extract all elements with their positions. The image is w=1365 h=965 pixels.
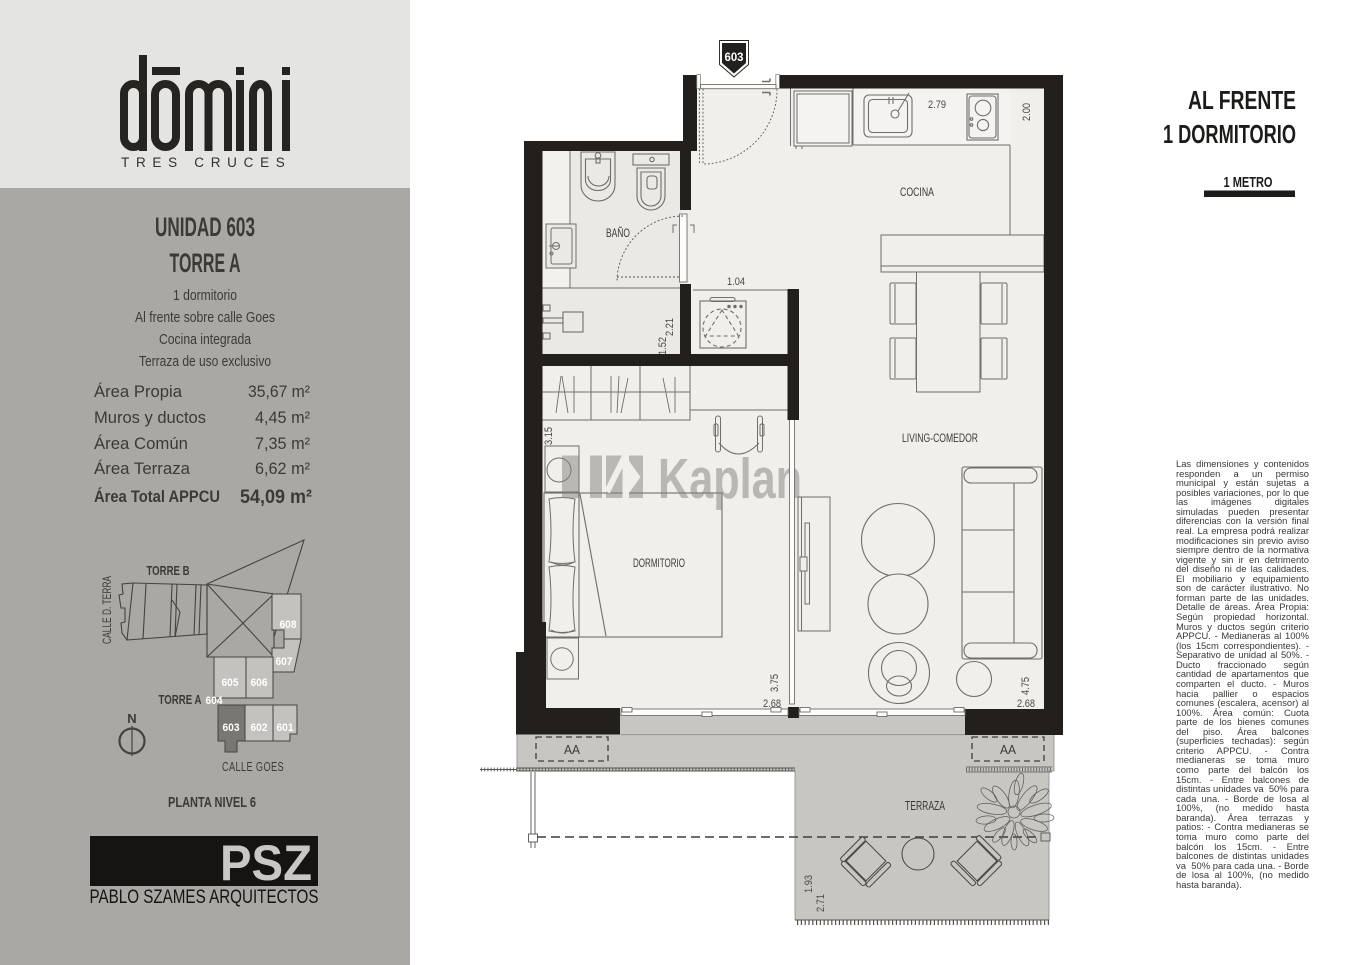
svg-text:4.75: 4.75 bbox=[1020, 677, 1032, 695]
svg-text:LIVING-COMEDOR: LIVING-COMEDOR bbox=[902, 431, 978, 445]
svg-text:3.75: 3.75 bbox=[769, 674, 781, 692]
svg-text:AL FRENTE: AL FRENTE bbox=[1188, 85, 1296, 115]
svg-text:Área Total APPCU: Área Total APPCU bbox=[94, 487, 220, 506]
svg-text:35,67 m²: 35,67 m² bbox=[248, 382, 310, 401]
svg-text:COCINA: COCINA bbox=[900, 185, 934, 199]
svg-text:1 dormitorio: 1 dormitorio bbox=[173, 287, 237, 304]
svg-text:2.71: 2.71 bbox=[815, 894, 827, 912]
svg-text:606: 606 bbox=[251, 677, 268, 689]
svg-text:TERRAZA: TERRAZA bbox=[905, 798, 945, 813]
svg-text:PSZ: PSZ bbox=[220, 835, 312, 891]
svg-text:7,35 m²: 7,35 m² bbox=[255, 434, 310, 453]
svg-text:1.52: 1.52 bbox=[657, 337, 669, 355]
svg-text:603: 603 bbox=[223, 722, 240, 734]
svg-text:CALLE D. TERRA: CALLE D. TERRA bbox=[102, 576, 114, 644]
svg-text:54,09 m²: 54,09 m² bbox=[240, 487, 312, 508]
svg-text:1 DORMITORIO: 1 DORMITORIO bbox=[1163, 119, 1296, 149]
svg-text:AA: AA bbox=[1000, 743, 1017, 757]
svg-text:6,62 m²: 6,62 m² bbox=[255, 459, 310, 478]
svg-text:Área Propia: Área Propia bbox=[94, 382, 183, 401]
svg-text:2.21: 2.21 bbox=[664, 318, 676, 336]
svg-text:2.00: 2.00 bbox=[1021, 103, 1033, 121]
svg-text:1 METRO: 1 METRO bbox=[1224, 174, 1273, 191]
svg-text:2.68: 2.68 bbox=[1017, 698, 1035, 710]
svg-text:601: 601 bbox=[277, 722, 294, 734]
svg-text:Cocina integrada: Cocina integrada bbox=[159, 331, 252, 348]
svg-text:3.15: 3.15 bbox=[543, 427, 555, 445]
svg-text:CALLE GOES: CALLE GOES bbox=[222, 760, 284, 774]
svg-text:Muros y ductos: Muros y ductos bbox=[94, 408, 206, 427]
svg-text:TRES CRUCES: TRES CRUCES bbox=[121, 155, 293, 170]
svg-text:607: 607 bbox=[276, 656, 293, 668]
svg-text:4,45 m²: 4,45 m² bbox=[255, 408, 310, 427]
svg-text:Kaplan: Kaplan bbox=[658, 447, 802, 511]
svg-text:PABLO SZAMES ARQUITECTOS: PABLO SZAMES ARQUITECTOS bbox=[90, 886, 319, 908]
svg-text:Área Común: Área Común bbox=[94, 434, 188, 453]
svg-text:1.04: 1.04 bbox=[727, 276, 745, 288]
svg-text:TORRE B: TORRE B bbox=[147, 564, 190, 578]
svg-text:603: 603 bbox=[725, 52, 744, 64]
svg-text:2.79: 2.79 bbox=[928, 99, 946, 111]
svg-text:AA: AA bbox=[564, 743, 581, 757]
svg-text:UNIDAD 603: UNIDAD 603 bbox=[155, 212, 255, 242]
svg-text:TORRE A: TORRE A bbox=[159, 693, 202, 707]
svg-text:605: 605 bbox=[222, 677, 239, 689]
svg-text:N: N bbox=[127, 711, 136, 726]
svg-text:DORMITORIO: DORMITORIO bbox=[633, 556, 685, 570]
svg-text:Al frente sobre calle Goes: Al frente sobre calle Goes bbox=[135, 309, 275, 326]
svg-text:Área Terraza: Área Terraza bbox=[94, 459, 191, 478]
svg-text:TORRE A: TORRE A bbox=[170, 248, 241, 278]
svg-text:2.68: 2.68 bbox=[763, 698, 781, 710]
svg-text:602: 602 bbox=[251, 722, 268, 734]
svg-text:PLANTA NIVEL 6: PLANTA NIVEL 6 bbox=[168, 795, 256, 811]
svg-text:BAÑO: BAÑO bbox=[606, 226, 630, 240]
svg-text:Terraza de uso exclusivo: Terraza de uso exclusivo bbox=[139, 353, 271, 370]
svg-text:608: 608 bbox=[280, 619, 297, 631]
svg-text:604: 604 bbox=[206, 695, 224, 707]
svg-text:1.93: 1.93 bbox=[803, 875, 815, 893]
